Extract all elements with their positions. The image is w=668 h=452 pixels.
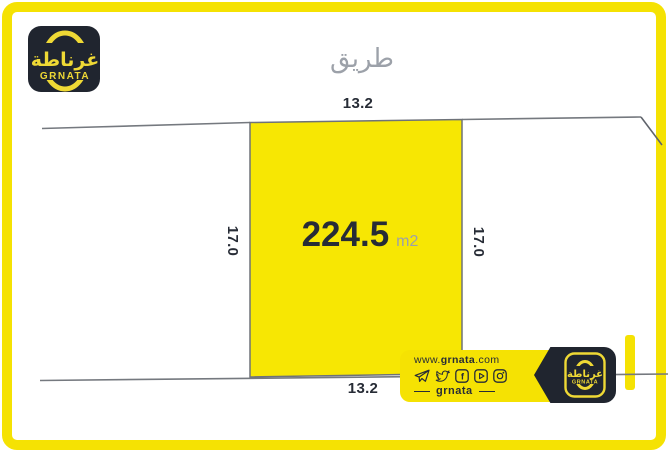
- youtube-icon: [474, 369, 488, 383]
- badge-logo-latin: GRNATA: [572, 380, 598, 386]
- dimension-top: 13.2: [328, 95, 388, 112]
- grnata-logo: غرناطة GRNATA: [28, 26, 100, 92]
- area-unit: m2: [396, 234, 418, 250]
- telegram-icon: [414, 369, 430, 383]
- website-url: www.grnata.com: [414, 355, 500, 367]
- road-label: طريق: [302, 44, 422, 74]
- brand-dash-left: [414, 391, 430, 392]
- website-suffix: .com: [475, 354, 499, 366]
- social-icons: f: [414, 369, 507, 383]
- brand-name: grnata: [436, 385, 473, 397]
- website-prefix: www.: [414, 354, 441, 366]
- logo-latin-text: GRNATA: [40, 71, 90, 82]
- brand-line: grnata: [414, 385, 495, 397]
- boundary-line-top-left: [42, 123, 250, 129]
- facebook-icon: f: [455, 369, 469, 383]
- boundary-line-diagonal: [641, 117, 662, 145]
- logo-arabic-text: غرناطة: [31, 49, 100, 71]
- dimension-left: 17.0: [225, 216, 241, 266]
- svg-text:f: f: [461, 372, 465, 383]
- area-label: 224.5 m2: [250, 217, 470, 252]
- flyer: طريق 13.2 13.2 17.0 17.0 224.5 m2 غرناطة…: [0, 0, 668, 452]
- instagram-icon: [493, 369, 507, 383]
- area-value: 224.5: [302, 217, 390, 252]
- dimension-bottom: 13.2: [333, 380, 393, 397]
- boundary-line-top-right: [462, 117, 641, 120]
- badge-logo-arabic: غرناطة: [567, 369, 603, 380]
- dimension-right: 17.0: [471, 217, 487, 267]
- footer-badge-dark: غرناطة GRNATA: [534, 347, 616, 403]
- brand-dash-right: [479, 391, 495, 392]
- grnata-emblem: غرناطة GRNATA: [28, 26, 100, 92]
- twitter-icon: [435, 370, 450, 383]
- badge-emblem: غرناطة GRNATA: [564, 352, 606, 398]
- website-name: grnata: [441, 354, 476, 366]
